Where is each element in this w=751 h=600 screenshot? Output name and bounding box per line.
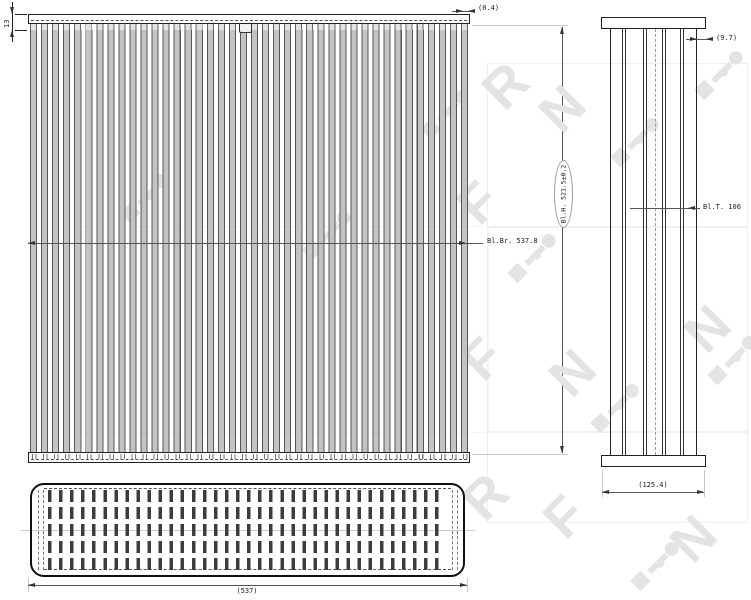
bottom-view-slot-row [48,490,446,502]
dim-arrow [10,30,14,37]
front-bottom-bar-dashline [31,459,467,460]
dim-overall-width-label: (537) [212,587,282,596]
dim-tank-height-ext-bottom [15,30,27,31]
front-tube-core [28,30,470,452]
bottom-view-slot-row [48,507,446,519]
dim-arrow [690,37,697,41]
dim-fin-thickness-label: (0.4) [478,4,499,13]
nrf-bird-logo-icon [692,45,751,105]
dim-block-height-ext-top [472,25,568,26]
dim-arrow [28,241,35,245]
dim-arrow [706,37,713,41]
bottom-view-end-marks [452,490,453,570]
side-tube-line [622,29,626,455]
dim-block-height-ext-bottom [472,454,568,455]
side-tube-line [680,29,684,455]
nrf-bird-logo-icon [705,330,751,390]
dim-tank-height-label: 13 [3,20,12,28]
dim-arrow [10,7,14,14]
dim-arrow [459,241,466,245]
front-top-tank [28,14,470,24]
side-centerline [655,29,656,455]
bottom-view-end-marks [43,490,44,570]
bottom-view-end-marks [38,490,39,570]
side-body [610,29,697,455]
side-top-tank [601,17,706,29]
dim-block-depth-label: Bl.T. 106 [702,203,742,212]
dim-overall-width-ext-right [467,578,468,592]
front-top-tank-dashline [31,20,467,21]
bottom-view-slot-row [48,558,446,570]
dim-overall-depth-line [602,492,704,493]
side-bottom-tank [601,455,706,467]
dim-arrow [456,9,463,13]
bottom-view-slot-row [48,524,446,536]
dim-arrow [602,490,609,494]
bottom-view-slot-row [48,541,446,553]
dim-arrow [468,9,475,13]
dim-tube-inset-label: (9.7) [716,34,737,43]
bottom-view-top-dash [44,488,451,489]
dim-block-height-label: Bl.H. 521.5±0.2 [559,165,567,224]
dim-tank-height-ext-top [15,14,27,15]
dim-arrow [28,583,35,587]
dim-block-width-line [28,243,483,244]
dim-arrow [560,27,564,34]
dim-block-height-oval: Bl.H. 521.5±0.2 [554,160,573,228]
front-bottom-bar [28,452,470,463]
dim-block-width-label: Bl.Br. 537.8 [486,237,539,246]
dim-arrow [560,446,564,453]
dim-overall-depth-ext-right [704,470,705,497]
dim-arrow [460,583,467,587]
dim-arrow [697,490,704,494]
dim-arrow [688,206,695,210]
technical-drawing-canvas: R F N F N R N F N [0,0,751,600]
side-tube-line [643,29,647,455]
dim-overall-width-line [28,585,467,586]
bottom-view-end-marks [457,490,458,570]
front-mounting-tab [239,24,252,33]
nrf-bird-logo-icon [628,536,688,596]
dim-overall-depth-label: (125.4) [618,481,688,490]
side-tube-line [662,29,666,455]
